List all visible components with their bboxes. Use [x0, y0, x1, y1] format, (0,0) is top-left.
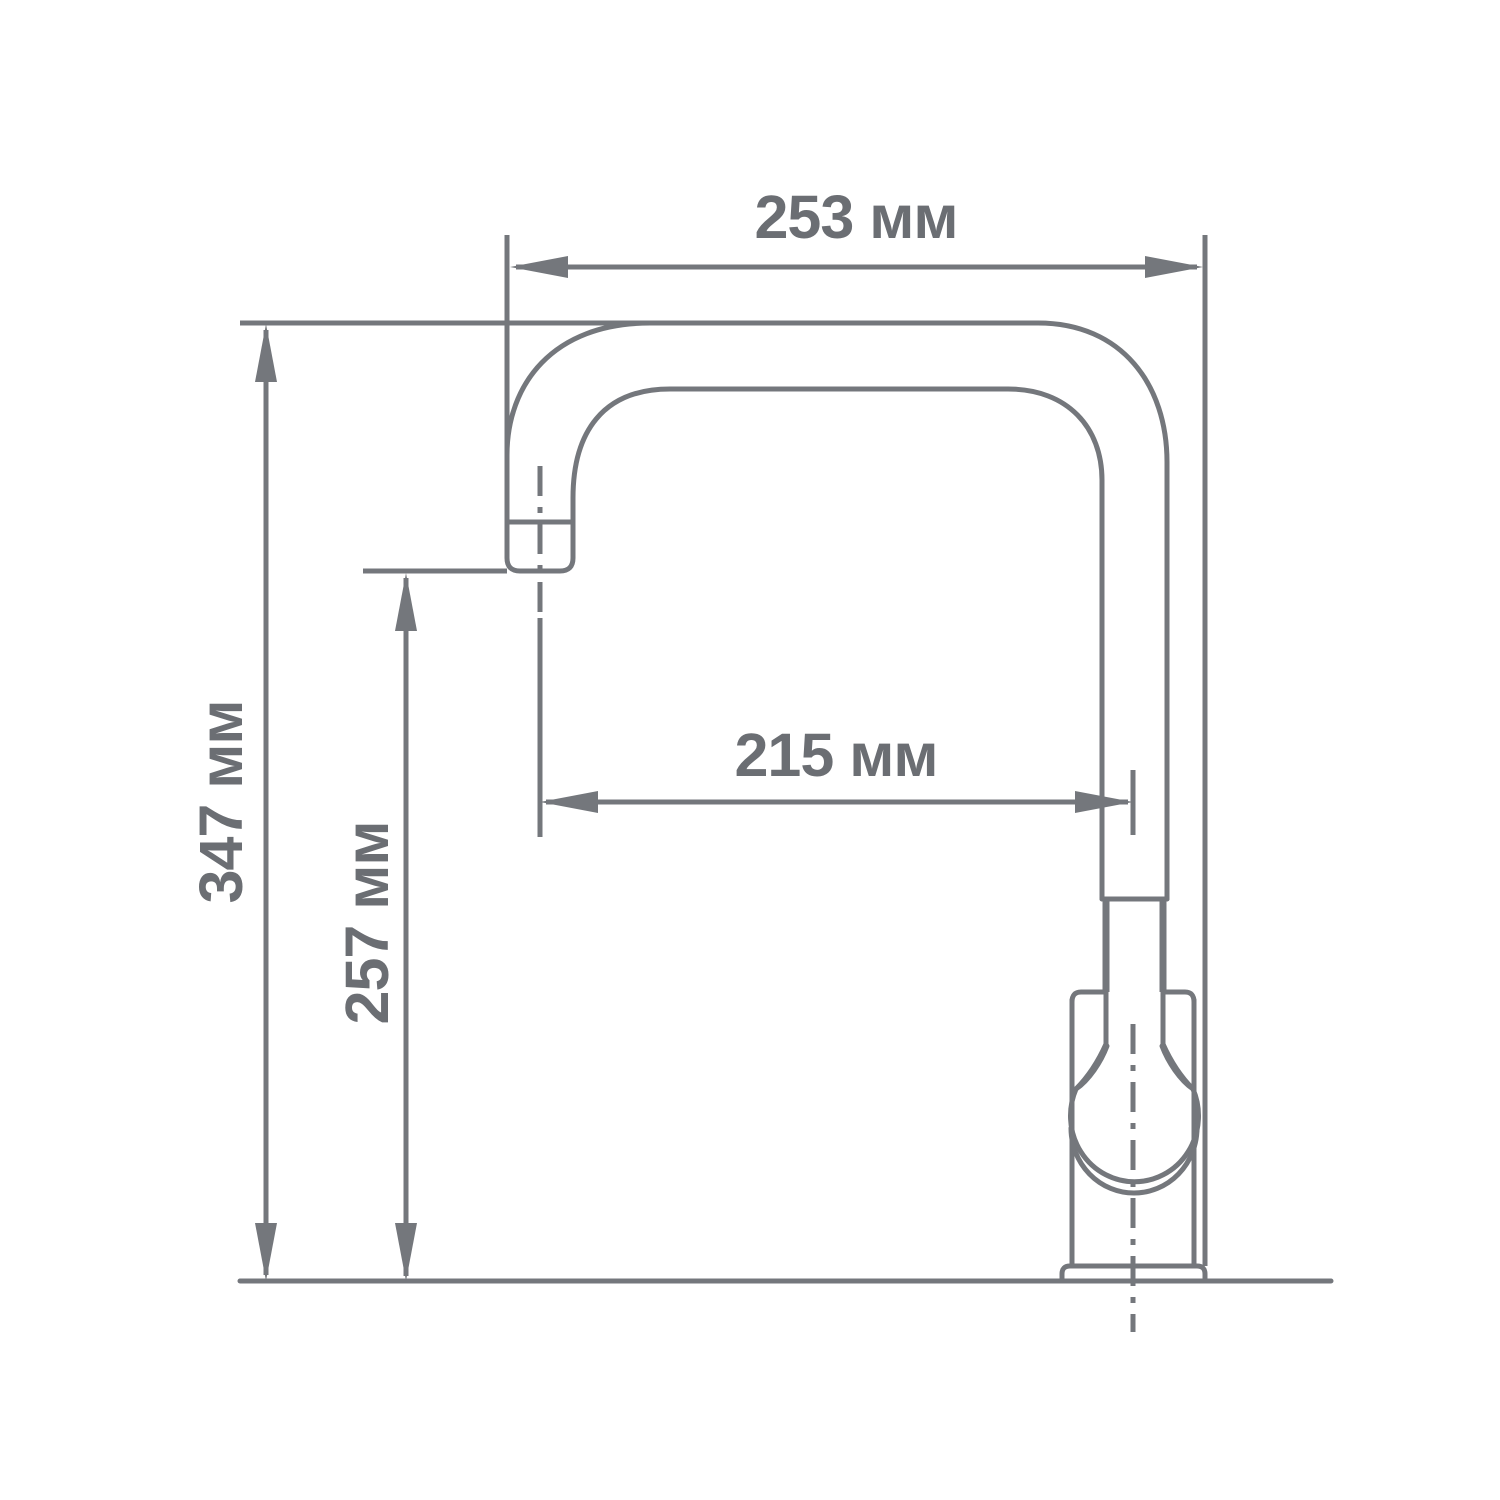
- faucet-dimension-drawing: 253 мм 347 мм 257 мм 215 мм: [0, 0, 1500, 1500]
- drawing-canvas: 253 мм 347 мм 257 мм 215 мм: [0, 0, 1500, 1500]
- centerlines: [540, 466, 1133, 1332]
- arrow-left-icon: [540, 791, 598, 813]
- arrow-left-icon: [510, 256, 568, 278]
- lever-petal-right: [1162, 1044, 1193, 1089]
- dim-label-overall-depth: 253 мм: [755, 183, 958, 251]
- dim-label-overall-height: 347 мм: [187, 701, 255, 904]
- body-shoulder-right: [1163, 992, 1194, 1002]
- dimension-spout-reach: 215 мм: [540, 618, 1133, 837]
- arrow-up-icon: [255, 324, 277, 382]
- spout-inner-contour: [573, 389, 1102, 899]
- arrow-right-icon: [1145, 256, 1203, 278]
- body-shoulder-left: [1072, 992, 1106, 1002]
- dim-label-spout-reach: 215 мм: [735, 721, 938, 789]
- dim-label-spout-height: 257 мм: [333, 822, 401, 1025]
- arrow-down-icon: [255, 1223, 277, 1281]
- lever-petal-left: [1076, 1044, 1107, 1089]
- dimension-spout-height: 257 мм: [333, 571, 507, 1281]
- arrow-down-icon: [395, 1223, 417, 1281]
- arrow-up-icon: [395, 573, 417, 631]
